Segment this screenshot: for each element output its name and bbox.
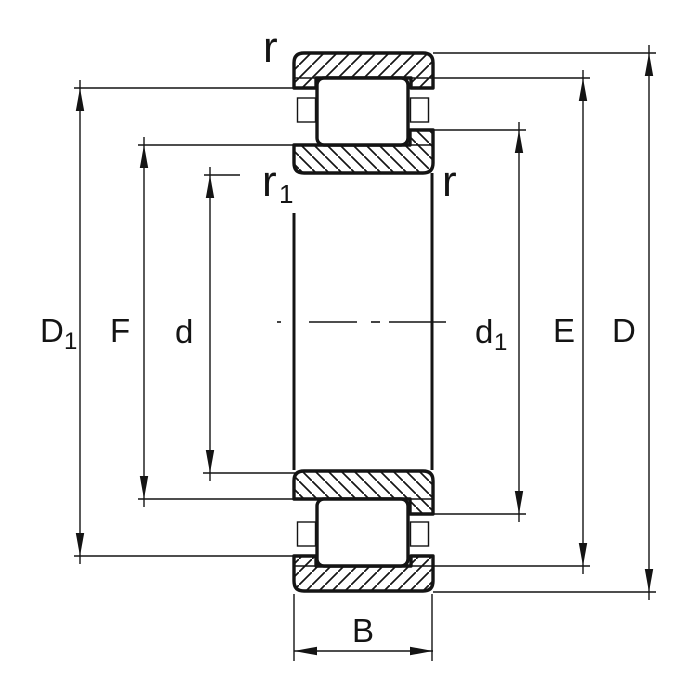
dim-label-B: B: [352, 612, 374, 649]
dim-label-d: d: [175, 313, 193, 350]
dim-label-E: E: [553, 312, 575, 349]
cage-pocket-upper-right: [411, 98, 429, 122]
dim-label-D1: D: [40, 312, 64, 349]
dim-label-F: F: [110, 312, 130, 349]
chamfer-label-r1: r: [262, 157, 277, 206]
cage-pocket-lower-right: [411, 522, 429, 546]
drawing-canvas: D 1 F d d 1 E D B r r 1 r: [0, 0, 696, 695]
cage-pocket-upper-left: [298, 98, 316, 122]
lower-cross-section: [294, 471, 433, 591]
dim-label-d1: d: [475, 313, 493, 350]
upper-cross-section: [294, 53, 433, 173]
dim-label-D: D: [612, 312, 636, 349]
cage-pocket-lower-left: [298, 522, 316, 546]
chamfer-label-r-right: r: [442, 157, 457, 206]
roller-upper: [317, 78, 408, 145]
roller-lower: [317, 499, 408, 566]
dim-label-D1-sub: 1: [64, 328, 77, 355]
chamfer-label-r1-sub: 1: [279, 179, 293, 209]
chamfer-label-r-top: r: [263, 23, 278, 72]
dim-label-d1-sub: 1: [494, 329, 507, 356]
bearing-technical-drawing: D 1 F d d 1 E D B r r 1 r: [0, 0, 696, 695]
